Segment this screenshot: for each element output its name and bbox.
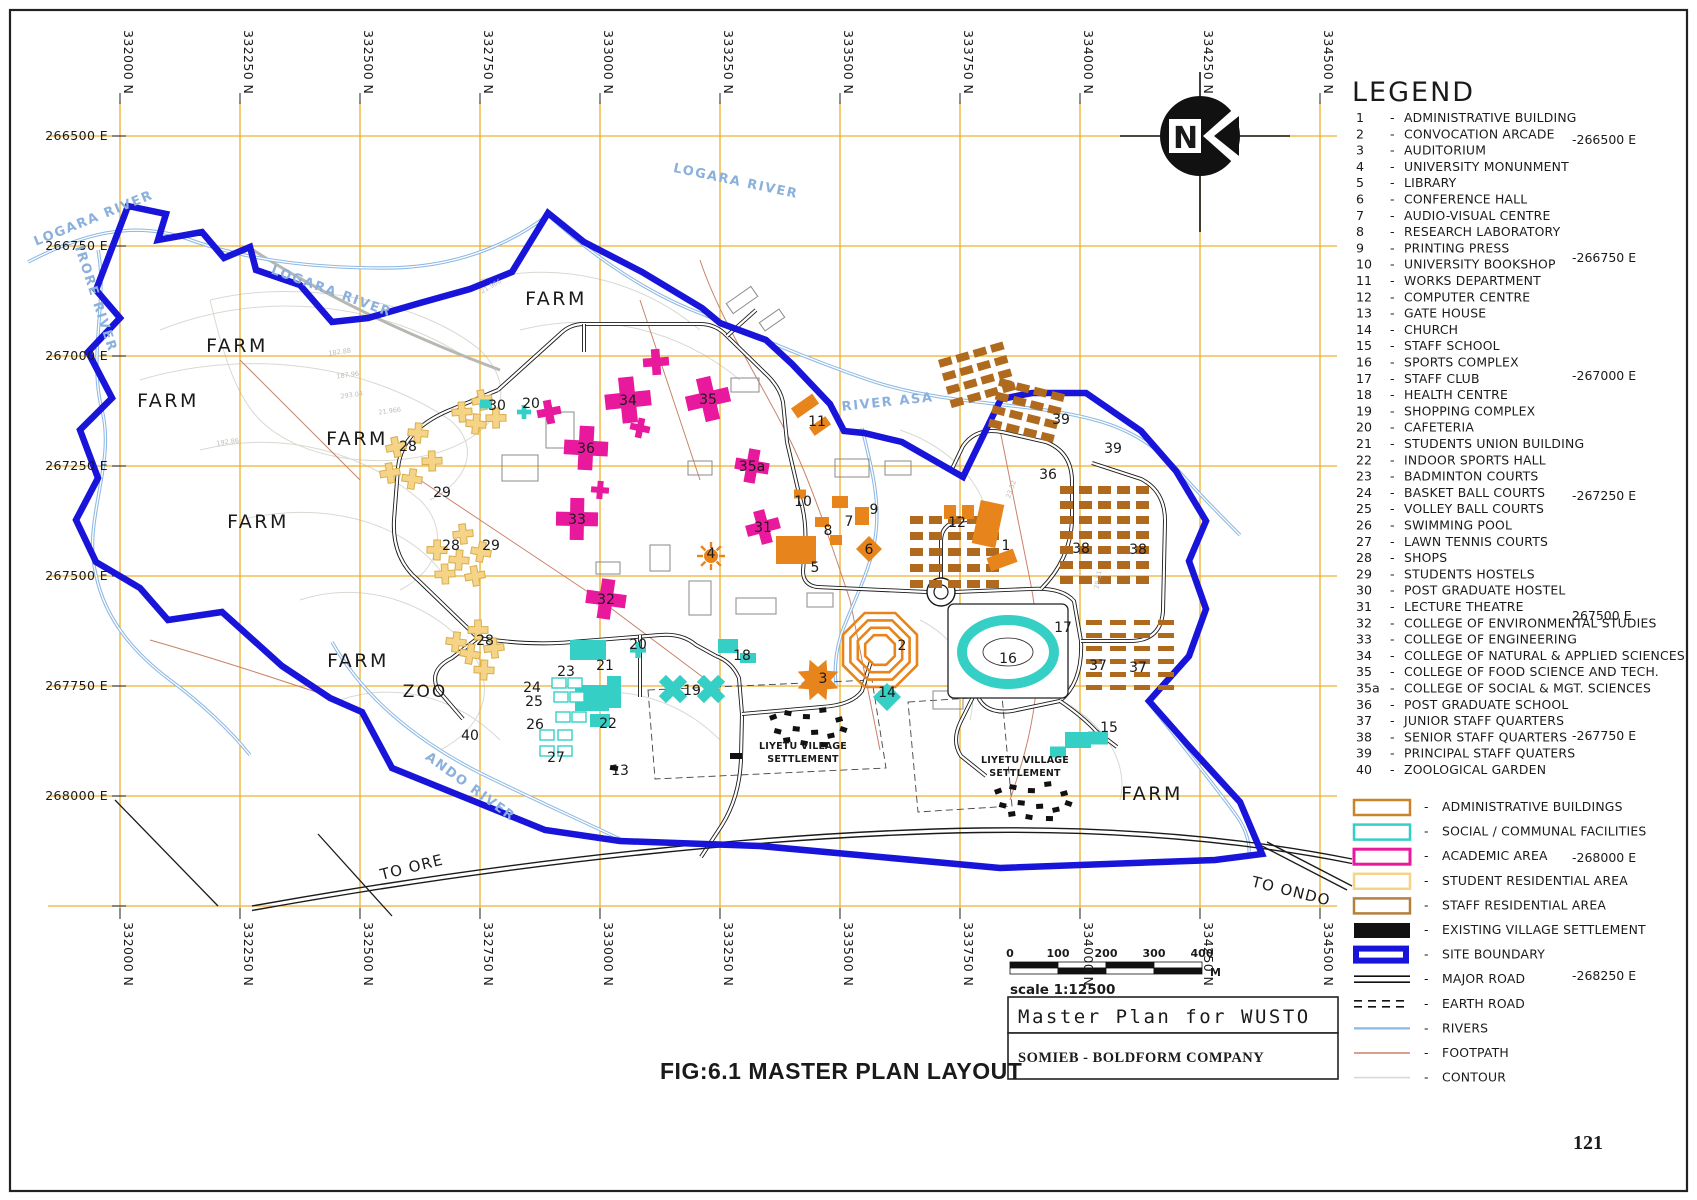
legend-symbol-label: EXISTING VILLAGE SETTLEMENT <box>1442 922 1646 937</box>
staff-house <box>1158 646 1174 651</box>
legend-item-label: HEALTH CENTRE <box>1404 387 1508 402</box>
east-coordinate-left: 266500 E <box>45 128 108 143</box>
farm-label: FARM <box>326 428 388 450</box>
building-marker-22: 22 <box>599 716 617 732</box>
communal-building <box>570 640 606 660</box>
farm-label: FARM <box>525 288 587 310</box>
legend-symbol-dash: - <box>1424 996 1429 1011</box>
legend-item-dash: - <box>1390 632 1395 647</box>
staff-house <box>1117 516 1130 524</box>
legend-item-dash: - <box>1390 681 1395 696</box>
staff-house <box>929 532 942 540</box>
staff-house <box>1136 561 1149 569</box>
legend-symbol-label: RIVERS <box>1442 1020 1488 1035</box>
legend-item-dash: - <box>1390 729 1395 744</box>
legend-item-number: 15 <box>1356 338 1372 353</box>
legend-item-dash: - <box>1390 566 1395 581</box>
building-marker-30: 30 <box>488 398 506 414</box>
gate-house <box>730 753 742 759</box>
legend-item-label: SENIOR STAFF QUARTERS <box>1404 729 1567 744</box>
building-marker-25: 25 <box>525 694 543 710</box>
village-house <box>803 714 810 719</box>
east-coordinate-left: 267000 E <box>45 348 108 363</box>
scale-bar-segment <box>1010 968 1058 974</box>
legend-symbol-label: STUDENT RESIDENTIAL AREA <box>1442 873 1628 888</box>
legend-item-number: 33 <box>1356 632 1372 647</box>
plan-canvas: LEGEND FIG:6.1 MASTER PLAN LAYOUT 121 Ma… <box>0 0 1697 1200</box>
title-block-company: SOMIEB - BOLDFORM COMPANY <box>1018 1050 1264 1066</box>
village-settlement-label: SETTLEMENT <box>767 754 839 765</box>
legend-swatch-academic <box>1354 849 1410 864</box>
north-coordinate-top: 334000 N <box>1081 30 1096 94</box>
staff-house <box>967 564 980 572</box>
north-coordinate-bottom: 334500 N <box>1321 922 1336 986</box>
legend-item-label: POST GRADUATE SCHOOL <box>1404 697 1568 712</box>
legend-swatch-admin <box>1354 800 1410 815</box>
legend-item-dash: - <box>1390 762 1395 777</box>
scale-bar-segment <box>1154 968 1202 974</box>
building-marker-13: 13 <box>611 763 629 779</box>
staff-house <box>1158 633 1174 638</box>
legend-item-number: 13 <box>1356 306 1372 321</box>
staff-house <box>1098 516 1111 524</box>
building-marker-16: 16 <box>999 651 1017 667</box>
legend-item-label: AUDIO-VISUAL CENTRE <box>1404 208 1551 223</box>
staff-house <box>1136 501 1149 509</box>
farm-label: FARM <box>327 650 389 672</box>
building-marker-1: 1 <box>1002 538 1011 554</box>
staff-house <box>1098 561 1111 569</box>
legend-item-label: BASKET BALL COURTS <box>1404 485 1545 500</box>
staff-house <box>1158 685 1174 690</box>
administrative-building <box>832 496 848 508</box>
staff-house <box>1060 486 1073 494</box>
east-coordinate-left: 268000 E <box>45 788 108 803</box>
legend-item-label: STUDENTS HOSTELS <box>1404 566 1535 581</box>
scale-bar-segment <box>1010 962 1058 968</box>
sports-court <box>572 712 586 722</box>
legend-symbol-label: EARTH ROAD <box>1442 996 1525 1011</box>
legend-item-number: 2 <box>1356 126 1364 141</box>
staff-house <box>1136 486 1149 494</box>
legend-item-number: 17 <box>1356 371 1372 386</box>
legend-item-dash: - <box>1390 436 1395 451</box>
legend-item-number: 5 <box>1356 175 1364 190</box>
administrative-building <box>855 507 869 525</box>
legend-item-dash: - <box>1390 240 1395 255</box>
east-coordinate-right: -266500 E <box>1572 132 1636 147</box>
scale-tick: 0 <box>1006 947 1014 960</box>
staff-house <box>1079 561 1092 569</box>
staff-house <box>986 580 999 588</box>
legend-symbol-dash: - <box>1424 873 1429 888</box>
legend-item-number: 18 <box>1356 387 1372 402</box>
staff-house <box>929 548 942 556</box>
north-coordinate-bottom: 332750 N <box>481 922 496 986</box>
staff-house <box>1134 685 1150 690</box>
legend-item-number: 8 <box>1356 224 1364 239</box>
legend-item-number: 39 <box>1356 746 1372 761</box>
north-coordinate-bottom: 333000 N <box>601 922 616 986</box>
legend-swatch-staff <box>1354 898 1410 913</box>
legend-item-number: 28 <box>1356 550 1372 565</box>
village-house <box>1044 781 1052 787</box>
legend-swatch-village <box>1354 923 1410 938</box>
legend-item-number: 40 <box>1356 762 1372 777</box>
legend-symbol-dash: - <box>1424 1020 1429 1035</box>
building-marker-38: 38 <box>1072 541 1090 557</box>
legend-item-dash: - <box>1390 615 1395 630</box>
legend-item-number: 11 <box>1356 273 1372 288</box>
north-coordinate-top: 333000 N <box>601 30 616 94</box>
legend-item-label: AUDITORIUM <box>1404 143 1486 158</box>
east-coordinate-right: -268000 E <box>1572 850 1636 865</box>
legend-item-dash: - <box>1390 371 1395 386</box>
legend-item-label: COLLEGE OF ENVIRONMENTAL STUDIES <box>1404 615 1657 630</box>
communal-building <box>607 676 621 708</box>
legend-symbol-dash: - <box>1424 947 1429 962</box>
sports-court <box>570 692 584 702</box>
staff-house <box>910 516 923 524</box>
legend-item-label: CONVOCATION ARCADE <box>1404 126 1555 141</box>
legend-item-dash: - <box>1390 420 1395 435</box>
legend-item-dash: - <box>1390 550 1395 565</box>
east-coordinate-right: -267750 E <box>1572 728 1636 743</box>
building-marker-28: 28 <box>399 439 417 455</box>
legend-item-dash: - <box>1390 175 1395 190</box>
staff-house <box>1079 576 1092 584</box>
legend-item-number: 10 <box>1356 257 1372 272</box>
staff-house <box>967 580 980 588</box>
building-marker-12: 12 <box>948 515 966 531</box>
legend-symbol-dash: - <box>1424 971 1429 986</box>
building-marker-4: 4 <box>707 546 716 562</box>
legend-item-dash: - <box>1390 387 1395 402</box>
village-house <box>1028 788 1035 793</box>
village-house <box>1008 811 1016 817</box>
farm-label: FARM <box>206 335 268 357</box>
sports-court <box>558 730 572 740</box>
legend-symbol-dash: - <box>1424 799 1429 814</box>
north-coordinate-bottom: 332500 N <box>361 922 376 986</box>
staff-house <box>1060 546 1073 554</box>
legend-item-dash: - <box>1390 746 1395 761</box>
building-marker-28: 28 <box>442 538 460 554</box>
east-coordinate-right: -268250 E <box>1572 968 1636 983</box>
legend-symbol-label: STAFF RESIDENTIAL AREA <box>1442 897 1606 912</box>
staff-house <box>929 564 942 572</box>
north-coordinate-bottom: 332250 N <box>241 922 256 986</box>
legend-item-dash: - <box>1390 452 1395 467</box>
legend-item-number: 24 <box>1356 485 1372 500</box>
staff-house <box>1079 486 1092 494</box>
village-house <box>1036 804 1043 809</box>
building-marker-26: 26 <box>526 717 544 733</box>
legend-item-number: 6 <box>1356 192 1364 207</box>
building-marker-21: 21 <box>596 658 614 674</box>
staff-house <box>948 532 961 540</box>
building-marker-36: 36 <box>577 441 595 457</box>
legend-item-number: 27 <box>1356 534 1372 549</box>
legend-item-label: LECTURE THEATRE <box>1404 599 1524 614</box>
village-house <box>1017 800 1024 806</box>
legend-item-number: 26 <box>1356 518 1372 533</box>
staff-house <box>948 564 961 572</box>
scale-label: scale 1:12500 <box>1010 982 1115 998</box>
building-marker-14: 14 <box>878 685 896 701</box>
staff-house <box>929 580 942 588</box>
staff-house <box>1098 546 1111 554</box>
farm-label: FARM <box>137 390 199 412</box>
scale-bar-segment <box>1106 968 1154 974</box>
building-marker-37: 37 <box>1129 660 1147 676</box>
scale-unit: M <box>1210 966 1221 979</box>
legend-symbol-dash: - <box>1424 824 1429 839</box>
legend-symbol-label: SITE BOUNDARY <box>1442 947 1545 962</box>
legend-item-number: 22 <box>1356 452 1372 467</box>
legend-item-number: 37 <box>1356 713 1372 728</box>
legend-item-label: LAWN TENNIS COURTS <box>1404 534 1548 549</box>
legend-symbol-dash: - <box>1424 1070 1429 1085</box>
legend-item-dash: - <box>1390 192 1395 207</box>
legend-item-number: 35 <box>1356 664 1372 679</box>
staff-house <box>1117 486 1130 494</box>
scale-tick: 100 <box>1047 947 1070 960</box>
staff-house <box>1060 501 1073 509</box>
legend-item-number: 25 <box>1356 501 1372 516</box>
staff-house <box>910 548 923 556</box>
building-marker-8: 8 <box>824 523 833 539</box>
legend-symbol-label: FOOTPATH <box>1442 1045 1509 1060</box>
village-settlement-label: LIYETU VILLAGE <box>759 741 847 752</box>
building-marker-6: 6 <box>865 542 874 558</box>
staff-house <box>1079 531 1092 539</box>
legend-item-dash: - <box>1390 599 1395 614</box>
legend-item-label: COLLEGE OF NATURAL & APPLIED SCIENCES <box>1404 648 1685 663</box>
north-coordinate-bottom: 333250 N <box>721 922 736 986</box>
north-coordinate-top: 332750 N <box>481 30 496 94</box>
building-marker-28: 28 <box>476 633 494 649</box>
village-house <box>1046 816 1053 821</box>
page-number: 121 <box>1573 1132 1603 1154</box>
legend-item-number: 12 <box>1356 289 1372 304</box>
village-house <box>811 730 818 735</box>
legend-item-label: VOLLEY BALL COURTS <box>1404 501 1544 516</box>
legend-item-number: 20 <box>1356 420 1372 435</box>
legend-item-label: PRINCIPAL STAFF QUATERS <box>1404 746 1575 761</box>
staff-house <box>1098 486 1111 494</box>
legend-item-label: LIBRARY <box>1404 175 1457 190</box>
staff-house <box>1086 620 1102 625</box>
east-coordinate-right: -267250 E <box>1572 488 1636 503</box>
legend-item-label: COLLEGE OF FOOD SCIENCE AND TECH. <box>1404 664 1659 679</box>
legend-item-dash: - <box>1390 322 1395 337</box>
farm-label: FARM <box>1121 783 1183 805</box>
staff-house <box>1134 646 1150 651</box>
staff-house <box>1110 685 1126 690</box>
staff-house <box>1086 685 1102 690</box>
staff-house <box>1110 646 1126 651</box>
staff-house <box>1098 531 1111 539</box>
master-plan-page: LEGEND FIG:6.1 MASTER PLAN LAYOUT 121 Ma… <box>0 0 1697 1200</box>
legend-symbol-label: ADMINISTRATIVE BUILDINGS <box>1442 799 1623 814</box>
legend-item-dash: - <box>1390 257 1395 272</box>
legend-item-number: 1 <box>1356 110 1364 125</box>
staff-house <box>948 580 961 588</box>
legend-item-label: UNIVERSITY BOOKSHOP <box>1404 257 1556 272</box>
legend-item-dash: - <box>1390 143 1395 158</box>
legend-item-number: 38 <box>1356 729 1372 744</box>
legend-item-dash: - <box>1390 583 1395 598</box>
legend-item-number: 3 <box>1356 143 1364 158</box>
legend-item-number: 30 <box>1356 583 1372 598</box>
staff-house <box>1060 516 1073 524</box>
legend-item-label: SWIMMING POOL <box>1404 518 1512 533</box>
legend-item-label: SHOPS <box>1404 550 1447 565</box>
legend-item-dash: - <box>1390 159 1395 174</box>
staff-house <box>1086 633 1102 638</box>
building-marker-37: 37 <box>1089 658 1107 674</box>
legend-item-label: SPORTS COMPLEX <box>1404 355 1519 370</box>
east-coordinate-right: -266750 E <box>1572 250 1636 265</box>
building-marker-3: 3 <box>819 671 828 687</box>
staff-house <box>1117 576 1130 584</box>
north-coordinate-bottom: 333500 N <box>841 922 856 986</box>
east-coordinate-right: -267000 E <box>1572 368 1636 383</box>
staff-house <box>967 548 980 556</box>
legend-item-dash: - <box>1390 469 1395 484</box>
building-marker-39: 39 <box>1052 412 1070 428</box>
staff-house <box>948 548 961 556</box>
legend-item-label: COLLEGE OF ENGINEERING <box>1404 632 1577 647</box>
building-marker-15: 15 <box>1100 720 1118 736</box>
staff-house <box>1117 531 1130 539</box>
building-marker-31: 31 <box>754 520 772 536</box>
scale-tick: 300 <box>1143 947 1166 960</box>
legend-item-number: 9 <box>1356 240 1364 255</box>
legend-item-label: CONFERENCE HALL <box>1404 192 1527 207</box>
legend-symbol-label: CONTOUR <box>1442 1070 1506 1085</box>
legend-item-number: 34 <box>1356 648 1372 663</box>
north-coordinate-top: 332250 N <box>241 30 256 94</box>
north-coordinate-bottom: 332000 N <box>121 922 136 986</box>
legend-item-dash: - <box>1390 403 1395 418</box>
building-marker-39: 39 <box>1104 441 1122 457</box>
east-coordinate-left: 267750 E <box>45 678 108 693</box>
staff-house <box>1134 633 1150 638</box>
legend-item-label: STAFF SCHOOL <box>1404 338 1500 353</box>
north-coordinate-top: 334500 N <box>1321 30 1336 94</box>
east-coordinate-left: 267250 E <box>45 458 108 473</box>
legend-symbol-dash: - <box>1424 1045 1429 1060</box>
legend-item-dash: - <box>1390 306 1395 321</box>
staff-house <box>1110 620 1126 625</box>
staff-house <box>1110 659 1126 664</box>
staff-house <box>1060 561 1073 569</box>
legend-item-label: RESEARCH LABORATORY <box>1404 224 1561 239</box>
north-coordinate-top: 333750 N <box>961 30 976 94</box>
legend-item-dash: - <box>1390 110 1395 125</box>
staff-house <box>1158 659 1174 664</box>
legend-item-dash: - <box>1390 126 1395 141</box>
legend-item-label: COMPUTER CENTRE <box>1404 289 1530 304</box>
building-marker-5: 5 <box>811 560 820 576</box>
communal-building <box>1065 732 1091 748</box>
legend-item-number: 32 <box>1356 615 1372 630</box>
legend-item-label: CAFETERIA <box>1404 420 1474 435</box>
village-settlement-label: SETTLEMENT <box>989 768 1061 779</box>
east-coordinate-left: 267500 E <box>45 568 108 583</box>
legend-title: LEGEND <box>1352 77 1475 108</box>
north-coordinate-top: 334250 N <box>1201 30 1216 94</box>
legend-symbol-dash: - <box>1424 922 1429 937</box>
legend-item-number: 14 <box>1356 322 1372 337</box>
building-marker-33: 33 <box>568 512 586 528</box>
staff-house <box>1136 516 1149 524</box>
legend-item-label: ZOOLOGICAL GARDEN <box>1404 762 1546 777</box>
village-settlement-label: LIYETU VILLAGE <box>981 755 1069 766</box>
legend-item-number: 19 <box>1356 403 1372 418</box>
staff-house <box>1079 516 1092 524</box>
village-house <box>792 726 799 732</box>
legend-item-label: SHOPPING COMPLEX <box>1404 403 1536 418</box>
legend-item-dash: - <box>1390 648 1395 663</box>
building-marker-40: 40 <box>461 728 479 744</box>
legend-item-dash: - <box>1390 697 1395 712</box>
legend-item-number: 29 <box>1356 566 1372 581</box>
legend-symbol-label: SOCIAL / COMMUNAL FACILITIES <box>1442 824 1646 839</box>
legend-item-label: INDOOR SPORTS HALL <box>1404 452 1546 467</box>
legend-item-label: JUNIOR STAFF QUARTERS <box>1403 713 1564 728</box>
farm-label: FARM <box>227 511 289 533</box>
legend-item-number: 4 <box>1356 159 1364 174</box>
staff-house <box>1158 672 1174 677</box>
compass-north-letter: N <box>1173 121 1198 156</box>
staff-house <box>1117 546 1130 554</box>
legend-item-dash: - <box>1390 485 1395 500</box>
building-marker-35: 35 <box>699 392 717 408</box>
building-marker-2: 2 <box>898 638 907 654</box>
building-marker-29: 29 <box>482 538 500 554</box>
building-marker-29: 29 <box>433 485 451 501</box>
staff-house <box>1117 561 1130 569</box>
legend-symbol-label: ACADEMIC AREA <box>1442 848 1548 863</box>
staff-house <box>910 532 923 540</box>
building-marker-9: 9 <box>870 502 879 518</box>
legend-item-label: BADMINTON COURTS <box>1404 469 1538 484</box>
building-marker-23: 23 <box>557 664 575 680</box>
legend-symbol-label: MAJOR ROAD <box>1442 971 1525 986</box>
building-marker-38: 38 <box>1129 542 1147 558</box>
legend-item-number: 23 <box>1356 469 1372 484</box>
scale-tick: 400 <box>1191 947 1214 960</box>
legend-item-number: 7 <box>1356 208 1364 223</box>
legend-swatch-social <box>1354 825 1410 840</box>
scale-bar-segment <box>1154 962 1202 968</box>
legend-item-label: PRINTING PRESS <box>1404 240 1509 255</box>
legend-item-label: CHURCH <box>1404 322 1458 337</box>
legend-item-label: COLLEGE OF SOCIAL & MGT. SCIENCES <box>1404 681 1651 696</box>
staff-house <box>1158 620 1174 625</box>
title-block-title: Master Plan for WUSTO <box>1018 1006 1311 1028</box>
staff-house <box>910 580 923 588</box>
building-marker-20: 20 <box>522 396 540 412</box>
legend-item-number: 16 <box>1356 355 1372 370</box>
legend-item-dash: - <box>1390 518 1395 533</box>
zoo-label: ZOO <box>403 682 447 702</box>
building-marker-35a: 35a <box>739 459 765 475</box>
legend-item-label: STAFF CLUB <box>1404 371 1480 386</box>
